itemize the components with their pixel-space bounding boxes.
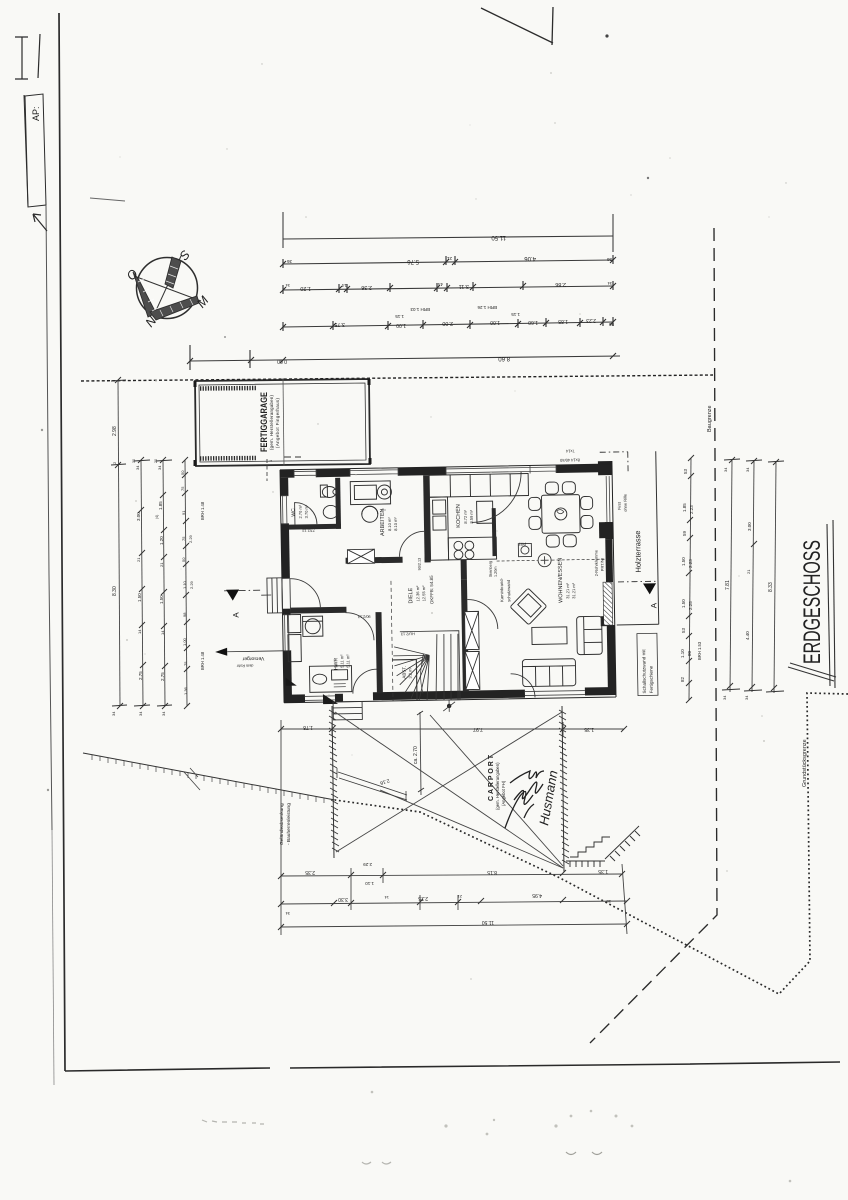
svg-text:1.20: 1.20	[159, 536, 164, 545]
svg-text:12.36 m²: 12.36 m²	[415, 585, 420, 602]
svg-text:8.59 m²: 8.59 m²	[469, 509, 474, 523]
svg-text:1.85: 1.85	[558, 318, 568, 324]
svg-text:ABST.: ABST.	[401, 666, 406, 679]
svg-text:2.16: 2.16	[379, 777, 390, 786]
svg-text:50: 50	[181, 557, 186, 562]
svg-text:1.10: 1.10	[365, 881, 374, 886]
svg-text:Baugrenze: Baugrenze	[707, 405, 713, 432]
svg-text:1.60: 1.60	[528, 319, 538, 325]
svg-text:38: 38	[606, 899, 611, 904]
svg-text:34: 34	[111, 711, 116, 716]
svg-text:Steinberg: Steinberg	[489, 561, 493, 577]
svg-text:1.20: 1.20	[300, 285, 311, 291]
svg-text:8.60: 8.60	[498, 355, 510, 361]
svg-text:WOHNEN/ESSEN: WOHNEN/ESSEN	[558, 558, 565, 603]
svg-text:14: 14	[384, 895, 389, 900]
svg-text:34: 34	[607, 281, 612, 286]
svg-text:Schallschutzwand mit: Schallschutzwand mit	[641, 649, 647, 694]
svg-text:1: 1	[268, 459, 273, 462]
svg-text:2: 2	[112, 461, 117, 464]
svg-text:2.23: 2.23	[688, 559, 693, 568]
svg-text:4.06: 4.06	[524, 255, 536, 261]
svg-text:3.00: 3.00	[136, 512, 141, 521]
svg-text:1.15: 1.15	[395, 314, 404, 319]
svg-text:20: 20	[154, 459, 158, 463]
svg-text:98: 98	[182, 612, 187, 617]
svg-text:BRH 1.48: BRH 1.48	[200, 651, 205, 670]
svg-text:82: 82	[680, 676, 685, 682]
svg-text:50: 50	[608, 322, 614, 327]
svg-text:2.23: 2.23	[586, 317, 596, 323]
svg-text:2.23: 2.23	[689, 505, 694, 514]
svg-text:2.00: 2.00	[442, 320, 453, 326]
svg-text:21: 21	[136, 557, 141, 562]
svg-text:90/2.13: 90/2.13	[358, 614, 371, 618]
svg-text:(gem. Herstellerangaben): (gem. Herstellerangaben)	[495, 762, 500, 810]
svg-text:OKFFB: 54.85: OKFFB: 54.85	[429, 575, 435, 604]
svg-text:8.33: 8.33	[768, 582, 774, 592]
svg-text:(Angebot Fingerhaus): (Angebot Fingerhaus)	[275, 397, 280, 448]
svg-text:30: 30	[132, 459, 136, 463]
svg-text:1.35: 1.35	[584, 726, 594, 732]
svg-text:34: 34	[161, 711, 166, 716]
svg-text:50: 50	[180, 470, 185, 475]
svg-text:1.35: 1.35	[598, 868, 608, 874]
svg-text:34: 34	[285, 283, 290, 288]
svg-text:1.50: 1.50	[681, 599, 686, 608]
svg-text:90/2.13: 90/2.13	[418, 558, 422, 571]
svg-text:KOCHEN: KOCHEN	[456, 504, 462, 528]
svg-text:8.30: 8.30	[112, 586, 118, 596]
svg-text:1.00: 1.00	[182, 637, 187, 646]
svg-text:AP:: AP:	[31, 106, 41, 121]
svg-text:A: A	[231, 612, 240, 618]
svg-text:Husmann: Husmann	[536, 769, 560, 826]
svg-text:44: 44	[437, 282, 443, 287]
svg-text:34: 34	[745, 467, 750, 472]
svg-text:(4): (4)	[155, 515, 159, 519]
svg-text:34: 34	[722, 695, 727, 700]
svg-text:8.72 m²: 8.72 m²	[463, 509, 468, 523]
svg-text:3.70 m²: 3.70 m²	[304, 504, 309, 518]
svg-text:59: 59	[682, 530, 687, 536]
svg-text:8x14 40/40: 8x14 40/40	[559, 458, 580, 463]
svg-text:31.21 m²: 31.21 m²	[565, 582, 570, 599]
svg-text:BRH 1.53: BRH 1.53	[697, 641, 702, 660]
svg-text:1.36: 1.36	[183, 686, 188, 695]
svg-text:2.29: 2.29	[189, 580, 194, 589]
svg-text:34: 34	[135, 465, 140, 470]
svg-text:HU/2.13: HU/2.13	[401, 631, 415, 635]
svg-text:2.25: 2.25	[418, 895, 428, 901]
svg-text:36: 36	[606, 257, 612, 262]
svg-text:21: 21	[446, 256, 452, 261]
svg-text:5.76: 5.76	[407, 258, 419, 264]
svg-text:3.11: 3.11	[459, 283, 469, 289]
svg-text:Grundstücksgrenze: Grundstücksgrenze	[802, 739, 808, 787]
svg-text:BRH 1.26: BRH 1.26	[477, 305, 497, 310]
svg-text:7.97: 7.97	[473, 726, 483, 732]
svg-text:75: 75	[183, 661, 188, 666]
svg-text:2-Rohrklemme: 2-Rohrklemme	[593, 549, 598, 576]
svg-text:ohne Rille: ohne Rille	[622, 493, 627, 512]
svg-text:3.00: 3.00	[747, 522, 752, 531]
svg-text:Holzterrasse: Holzterrasse	[633, 530, 643, 572]
svg-text:1.50: 1.50	[137, 593, 142, 602]
svg-text:14: 14	[160, 630, 165, 635]
svg-text:34: 34	[723, 467, 728, 472]
svg-text:14: 14	[137, 629, 142, 634]
svg-text:2.86: 2.86	[555, 281, 566, 287]
svg-text:ca. 2.70: ca. 2.70	[413, 746, 419, 764]
svg-text:1.00: 1.00	[396, 322, 406, 328]
svg-text:1.10: 1.10	[182, 580, 187, 589]
svg-text:WC: WC	[291, 508, 297, 517]
svg-text:11.50: 11.50	[491, 234, 506, 240]
svg-text:First: First	[617, 501, 622, 510]
svg-text:BRH 1.48: BRH 1.48	[200, 501, 205, 520]
svg-text:0.60: 0.60	[277, 358, 287, 364]
svg-text:34: 34	[138, 711, 143, 716]
svg-text:75: 75	[181, 536, 186, 541]
svg-text:91: 91	[181, 510, 186, 515]
svg-text:4.95: 4.95	[532, 892, 542, 898]
svg-text:5.11 m²: 5.11 m²	[345, 654, 350, 668]
svg-text:34: 34	[285, 911, 290, 916]
svg-text:80: 80	[687, 650, 692, 656]
svg-text:BRH 1.03: BRH 1.03	[410, 307, 430, 312]
svg-text:2.70 m²: 2.70 m²	[298, 504, 303, 518]
svg-text:2.29: 2.29	[363, 862, 372, 867]
svg-text:36: 36	[286, 259, 292, 264]
svg-text:53: 53	[681, 627, 686, 633]
svg-text:Geländeabsenkung: Geländeabsenkung	[279, 803, 285, 845]
svg-text:3.2 m²: 3.2 m²	[407, 667, 412, 679]
svg-text:2.98: 2.98	[112, 426, 118, 436]
svg-text:2.35: 2.35	[305, 869, 315, 875]
svg-text:11.50: 11.50	[482, 919, 494, 925]
svg-text:1.50: 1.50	[681, 557, 686, 566]
svg-text:8.10 m²: 8.10 m²	[393, 517, 398, 531]
svg-text:1.78: 1.78	[303, 724, 313, 730]
svg-text:1.85: 1.85	[682, 503, 687, 512]
svg-text:75: 75	[180, 486, 185, 491]
svg-text:12.55 m²: 12.55 m²	[421, 585, 426, 602]
svg-text:(gem. Herstellerangaben): (gem. Herstellerangaben)	[269, 394, 274, 450]
svg-text:5.11 m²: 5.11 m²	[339, 654, 344, 668]
svg-text:14: 14	[341, 283, 347, 288]
svg-text:34: 34	[744, 695, 749, 700]
svg-text:3.30: 3.30	[338, 896, 348, 902]
svg-text:8.10 m²: 8.10 m²	[387, 517, 392, 531]
svg-text:3.75: 3.75	[334, 321, 345, 327]
svg-text:- Bauherrenleistung: - Bauherrenleistung	[286, 803, 292, 845]
svg-text:schutzwand: schutzwand	[506, 579, 511, 602]
svg-text:8.15: 8.15	[487, 869, 497, 875]
svg-text:21: 21	[746, 569, 751, 574]
svg-text:A: A	[649, 602, 658, 608]
svg-text:1.15: 1.15	[511, 312, 520, 317]
svg-text:1.10: 1.10	[680, 649, 685, 658]
svg-text:1.85: 1.85	[158, 501, 163, 510]
svg-text:21: 21	[457, 894, 462, 899]
svg-text:1.00: 1.00	[490, 319, 500, 325]
svg-text:34: 34	[157, 465, 162, 470]
svg-text:31.21 m²: 31.21 m²	[571, 582, 576, 599]
svg-text:PRT: PRT	[518, 542, 527, 547]
svg-text:(Angebot FH): (Angebot FH)	[501, 780, 506, 806]
svg-text:DIELE: DIELE	[408, 587, 414, 603]
svg-text:CARPORT: CARPORT	[488, 754, 495, 801]
svg-text:1.50: 1.50	[159, 595, 164, 604]
svg-text:Fertigschiene: Fertigschiene	[648, 665, 653, 693]
svg-text:7.81: 7.81	[725, 580, 731, 590]
svg-text:7x14: 7x14	[565, 449, 575, 454]
svg-text:PRT/Nr: PRT/Nr	[600, 557, 605, 571]
svg-text:dem Rohr: dem Rohr	[236, 663, 253, 667]
svg-text:ERDGESCHOSS: ERDGESCHOSS	[799, 540, 826, 664]
svg-text:2.25: 2.25	[688, 601, 693, 610]
svg-text:2.36: 2.36	[361, 284, 372, 290]
svg-text:2.75: 2.75	[160, 672, 165, 681]
svg-text:1.20m: 1.20m	[494, 566, 498, 577]
svg-text:2.29: 2.29	[188, 534, 193, 543]
svg-text:Versorger: Versorger	[242, 655, 264, 661]
svg-text:4.40: 4.40	[745, 631, 750, 640]
svg-text:77/2.13: 77/2.13	[302, 528, 315, 532]
svg-text:53: 53	[683, 468, 688, 474]
svg-text:Kaminbrand-: Kaminbrand-	[499, 577, 504, 602]
svg-text:2.75: 2.75	[138, 671, 143, 680]
svg-text:21: 21	[159, 562, 164, 567]
